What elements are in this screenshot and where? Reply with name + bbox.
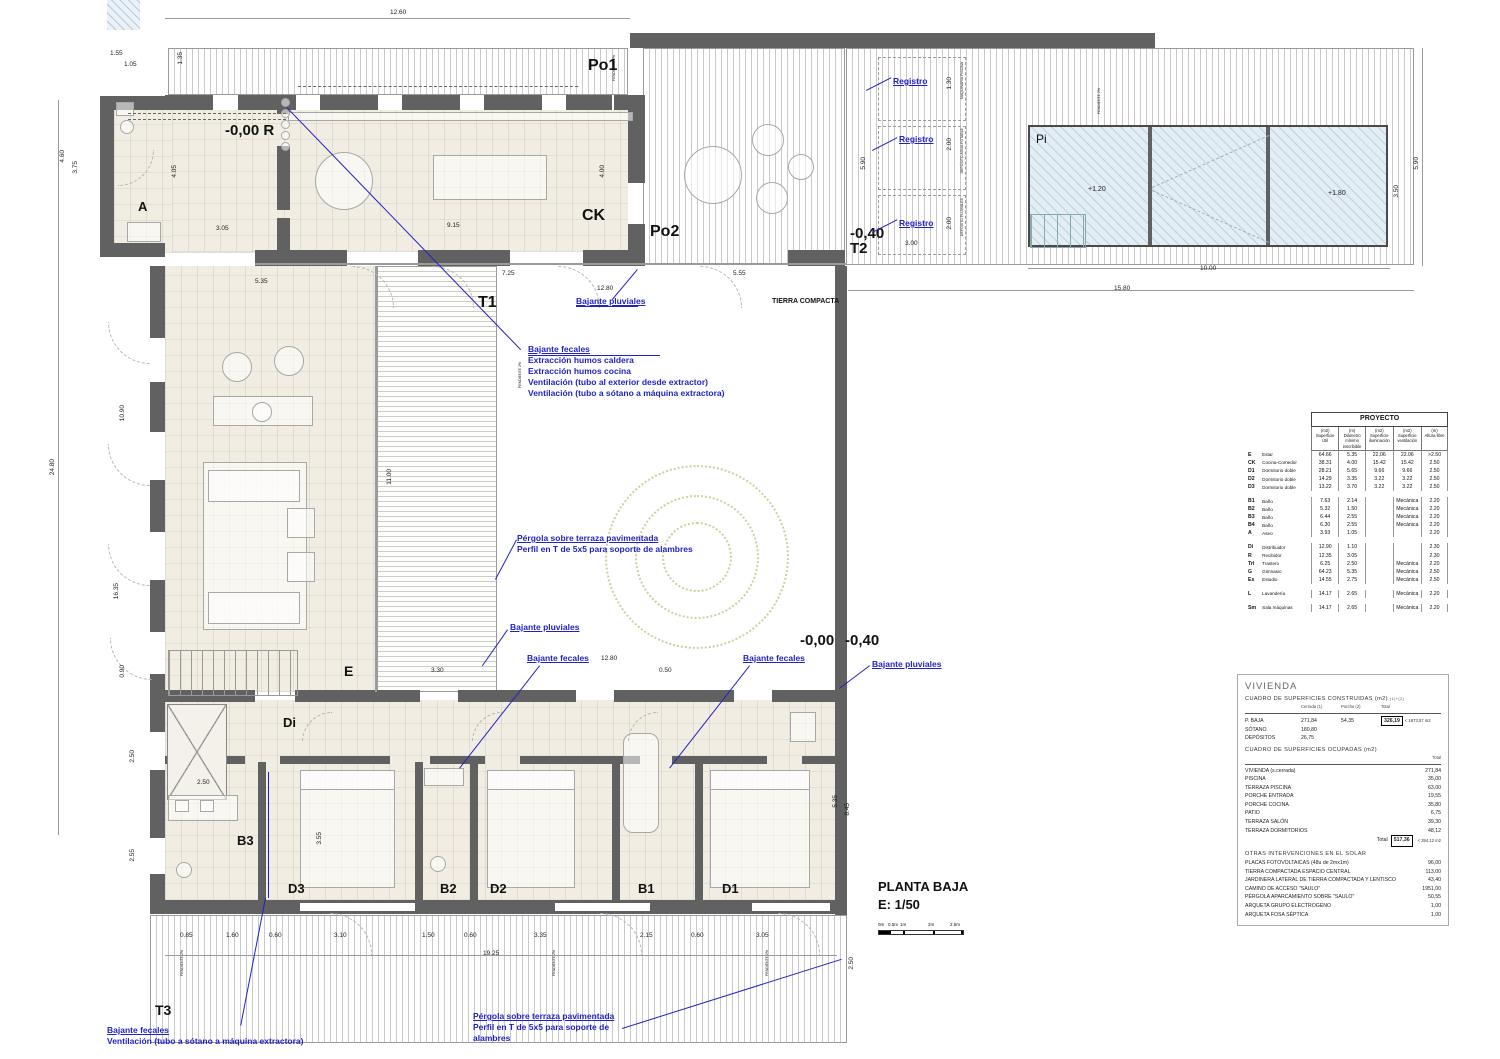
pbaja-total: 326,19: [1381, 716, 1403, 726]
furniture: [710, 770, 810, 790]
constructed-note: (1)+(2): [1390, 697, 1404, 701]
wall: [628, 224, 645, 266]
annotation-note: Bajante fecalesExtracción humos calderaE…: [528, 344, 724, 399]
furniture-round: [176, 862, 192, 878]
terrace-hatch: [168, 48, 628, 95]
room-label: -0,00: [800, 633, 834, 648]
dimension-label: +1.80: [1328, 190, 1346, 197]
other-intervention-row: ARQUETA FOSA SÉPTICA1,00: [1245, 911, 1441, 920]
proyecto-col-header: (m2)Superficieiluminación: [1366, 426, 1394, 450]
utility-line: [128, 119, 286, 120]
dimension-line: [58, 100, 59, 835]
dimension-label: 0.85: [180, 933, 193, 940]
annotation-line: Bajante pluviales: [872, 659, 941, 670]
vivienda-summary-panel: VIVIENDA CUADRO DE SUPERFICIES CONSTRUID…: [1237, 674, 1449, 926]
scale-bar-label: 0m: [878, 922, 884, 927]
dimension-label: 2.00: [947, 138, 954, 151]
dimension-label: 3.05: [756, 933, 769, 940]
door-swing-arc: [108, 322, 150, 364]
room-label: E: [344, 664, 353, 678]
dimension-label: 10.00: [1200, 266, 1216, 273]
annotation-line: Pérgola sobre terraza pavimentada: [517, 533, 693, 544]
floor-plan-canvas: PLANTA BAJA E: 1/50 0m0.5m1m2m2.5m PROYE…: [0, 0, 1500, 1059]
other-intervention-row: PLACAS FOTOVOLTAICAS (48u de 2mx1m)96,00: [1245, 859, 1441, 868]
wall: [430, 756, 485, 764]
dimension-label: 10.90: [120, 405, 127, 421]
wall: [150, 874, 165, 902]
wall: [150, 382, 165, 432]
proyecto-row: EEstar64.665.3522.0622.06>2.50: [1246, 450, 1448, 459]
room-label: Po2: [650, 224, 679, 240]
wall: [280, 756, 390, 764]
wall: [295, 690, 420, 702]
pbaja-label: P. BAJA: [1245, 717, 1301, 725]
dimension-label: 4.60: [60, 150, 67, 163]
annotation-line: Ventilación (tubo a sótano a máquina ext…: [107, 1036, 303, 1047]
leader-line: [495, 539, 517, 579]
dimension-label: 12.60: [390, 10, 406, 17]
furniture: [208, 592, 300, 624]
constructed-heading: CUADRO DE SUPERFICIES CONSTRUIDAS (m2) (…: [1245, 696, 1441, 702]
furniture-round: [430, 856, 446, 872]
furniture: [790, 712, 816, 742]
dimension-label: 5.35: [255, 279, 268, 286]
bajante-stack: [281, 98, 290, 107]
annotation-line: Bajante fecales: [743, 653, 805, 664]
proyecto-row: D1Dormitorio doble28.215.659.669.662.50: [1246, 467, 1448, 475]
room-label: -0,40: [845, 633, 879, 648]
utility-line: [298, 86, 578, 87]
other-intervention-row: JARDINERA LATERAL DE TIERRA COMPACTADA Y…: [1245, 876, 1441, 885]
furniture: [287, 552, 315, 582]
dimension-label: 11.00: [387, 469, 394, 485]
dimension-label: 0.60: [691, 933, 704, 940]
window-opening: [300, 903, 415, 911]
annotation-line: Bajante fecales: [528, 344, 724, 355]
wall: [415, 762, 423, 902]
occupied-total-row: Total 517,36 < 394,12 m2: [1245, 835, 1441, 847]
wall: [612, 762, 620, 902]
leader-line: [268, 772, 269, 898]
proyecto-row: DiDistribuidor12.901.102.30: [1246, 543, 1448, 551]
wall: [320, 95, 378, 110]
staircase: [168, 650, 298, 696]
occupied-row: PISCINA35,00: [1245, 775, 1441, 784]
wall: [484, 95, 542, 110]
dimension-label: 1.05: [124, 62, 137, 69]
wall: [520, 756, 640, 764]
annotation-line: Perfil en T de 5x5 para soporte de alamb…: [517, 544, 693, 555]
annotation-line: Registro: [899, 134, 933, 145]
col-cerrada: Cerrada (1): [1301, 704, 1341, 711]
proyecto-row: B2Baño5.321.50Mecánica2.20: [1246, 505, 1448, 513]
furniture: [127, 222, 161, 242]
other-rows: PLACAS FOTOVOLTAICAS (48u de 2mx1m)96,00…: [1245, 859, 1441, 919]
dimension-label: DEPÓSITO AGUA POTABLE: [961, 128, 965, 173]
annotation-note: Pérgola sobre terraza pavimentadaPerfil …: [517, 533, 693, 555]
dimension-line: [165, 18, 630, 19]
dimension-label: PENDIENTE 2%: [1098, 88, 1102, 114]
dimension-label: 5.35: [833, 795, 840, 808]
dimension-label: 0.90: [120, 665, 127, 678]
wall: [150, 900, 847, 914]
furniture: [424, 768, 464, 786]
furniture-round: [756, 182, 788, 214]
proyecto-row: CKCocina-Comedor38.314.0015.4215.422.50: [1246, 459, 1448, 467]
room-label: Di: [283, 716, 296, 729]
constructed-heading-text: CUADRO DE SUPERFICIES CONSTRUIDAS (m2): [1245, 696, 1388, 702]
furniture: [487, 770, 575, 790]
annotation-line: Registro: [899, 218, 933, 229]
dimension-label: 0.50: [659, 668, 672, 675]
dimension-label: 24.80: [50, 459, 57, 475]
other-intervention-row: PÉRGOLA APARCAMIENTO SOBRE "SAULO"50,55: [1245, 893, 1441, 902]
utility-line: [128, 113, 286, 114]
dimension-label: PENDIENTE 2%: [553, 950, 557, 976]
furniture-round: [788, 154, 814, 180]
annotation-line: Ventilación (tubo a sótano a máquina ext…: [528, 388, 724, 399]
dimension-line: [848, 290, 1414, 291]
dimension-label: 4.05: [172, 165, 179, 178]
dimension-label: 12.80: [597, 286, 613, 293]
terrace-t1-hatch: [377, 266, 497, 692]
wall: [802, 756, 835, 764]
wall: [100, 96, 175, 110]
dimension-label: DEPÓSITO PLUVIALES: [961, 198, 965, 236]
bajante-stack: [281, 120, 290, 129]
wall: [150, 770, 165, 838]
row-sotano: SÓTANO 180,80: [1245, 726, 1441, 734]
wall: [277, 146, 290, 210]
plan-title: PLANTA BAJA: [878, 878, 968, 896]
proyecto-row: TrlTrastero6.252.50Mecánica2.20: [1246, 560, 1448, 568]
proyecto-title: PROYECTO: [1312, 413, 1448, 427]
dimension-label: 12.80: [601, 656, 617, 663]
wall: [100, 243, 165, 257]
plan-scale: E: 1/50: [878, 896, 968, 914]
furniture-round: [222, 352, 252, 382]
annotation-line: Bajante fecales: [527, 653, 589, 664]
dimension-label: 16.35: [114, 583, 121, 599]
pbaja-porche: 54,35: [1341, 717, 1381, 725]
proyecto-row: AAseo3.931.052.20: [1246, 529, 1448, 537]
room-label: -0,00 R: [225, 123, 274, 138]
col-porche: Porche (2): [1341, 704, 1381, 711]
depositos-label: DEPÓSITOS: [1245, 734, 1301, 742]
wall: [614, 690, 734, 702]
dimension-line: [1422, 48, 1423, 266]
wall: [470, 762, 478, 902]
wall: [100, 96, 114, 256]
furniture-round: [120, 120, 134, 134]
room-label: CK: [582, 208, 605, 224]
furniture: [287, 508, 315, 538]
annotation-line: Bajante pluviales: [510, 622, 579, 633]
room-label: D3: [288, 882, 305, 895]
sotano-value: 180,80: [1301, 726, 1341, 734]
proyecto-col-header: (m)Altura libre: [1422, 426, 1448, 450]
proyecto-row: EsEstudio14.552.75Mecánica2.50: [1246, 576, 1448, 584]
wall: [566, 95, 612, 110]
row-depositos: DEPÓSITOS 26,75: [1245, 734, 1441, 742]
dimension-label: MAQUINARIA PISCINA: [961, 62, 965, 99]
proyecto-row: GGimnasio64.235.35Mecánica2.50: [1246, 568, 1448, 576]
dimension-label: 1.60: [226, 933, 239, 940]
occupied-total-value: 517,36: [1391, 835, 1413, 847]
annotation-line: Perfil en T de 5x5 para soporte de: [473, 1022, 614, 1033]
room-label: B2: [440, 882, 457, 895]
furniture: [208, 470, 300, 502]
annotation-note: Bajante fecalesVentilación (tubo a sótan…: [107, 1025, 303, 1047]
wall: [150, 480, 165, 532]
dimension-label: 2.50: [197, 780, 210, 787]
scale-bar-label: 0.5m: [888, 922, 898, 927]
annotation-line: Bajante fecales: [107, 1025, 303, 1036]
annotation-note: Bajante fecales: [743, 653, 805, 664]
wall: [165, 95, 213, 110]
scale-bar-label: 1m: [900, 922, 906, 927]
room-label: D1: [722, 882, 739, 895]
dimension-label: 1.50: [422, 933, 435, 940]
proyecto-row: LLavandería14.172.65Mecánica2.20: [1246, 590, 1448, 598]
wall: [1266, 127, 1270, 245]
scale-bar-labels: 0m0.5m1m2m2.5m: [878, 922, 978, 928]
dimension-label: 3.10: [334, 933, 347, 940]
door-swing-arc: [108, 444, 150, 486]
dimension-label: 0.60: [269, 933, 282, 940]
furniture-round: [684, 146, 742, 204]
dimension-label: 15.80: [1114, 286, 1130, 293]
wall: [150, 266, 165, 338]
dimension-label: 3.75: [73, 161, 80, 174]
wall: [630, 33, 1155, 48]
annotation-line: alambres: [473, 1033, 614, 1044]
dimension-label: PENDIENTE 2%: [181, 950, 185, 976]
wall: [695, 762, 703, 902]
dimension-label: 2.00: [947, 217, 954, 230]
wall: [258, 762, 266, 902]
pbaja-cerrada: 271,84: [1301, 717, 1341, 725]
proyecto-surfaces-table: PROYECTO (m2)SuperficieÚtil(m)Diámetromí…: [1246, 412, 1448, 612]
furniture: [433, 155, 547, 200]
occupied-limit: < 394,12 m2: [1418, 837, 1441, 845]
other-heading: OTRAS INTERVENCIONES EN EL SOLAR: [1245, 851, 1441, 857]
wall: [150, 580, 165, 632]
occupied-heading: CUADRO DE SUPERFICIES OCUPADAS (m2): [1245, 747, 1441, 753]
other-intervention-row: ARQUETA GRUPO ELECTROGENO1,00: [1245, 902, 1441, 911]
room-label: T3: [155, 1003, 171, 1017]
bajante-stack: [281, 142, 290, 151]
dimension-label: 4.00: [600, 165, 607, 178]
proyecto-row: RRecibidor12.353.052.30: [1246, 552, 1448, 560]
dimension-label: 1.55: [110, 51, 123, 58]
occupied-row: TERRAZA DORMITORIOS48,12: [1245, 827, 1441, 836]
leader-line: [576, 306, 638, 307]
plan-title-block: PLANTA BAJA E: 1/50: [878, 878, 968, 913]
dimension-label: 8.45: [845, 803, 852, 816]
dimension-label: 2.50: [130, 750, 137, 763]
row-pbaja: P. BAJA 271,84 54,35 326,19< 1873,57 m2: [1245, 716, 1441, 726]
annotation-line: Pérgola sobre terraza pavimentada: [473, 1011, 614, 1022]
pool-steps: [1030, 214, 1086, 248]
furniture: [200, 800, 214, 812]
dimension-label: 9.15: [447, 223, 460, 230]
annotation-line: Ventilación (tubo al exterior desde extr…: [528, 377, 724, 388]
dimension-label: 7.25: [502, 271, 515, 278]
scale-bar: [878, 930, 964, 935]
dimension-label: PENDIENTE 2%: [519, 362, 523, 388]
dimension-label: 3.55: [317, 832, 324, 845]
occupied-row: PATIO6,75: [1245, 809, 1441, 818]
annotation-line: Extracción humos cocina: [528, 366, 724, 377]
room-label: B3: [237, 834, 254, 847]
occupied-total-label: Total: [1377, 836, 1388, 846]
occupied-row: PORCHE COCINA35,80: [1245, 801, 1441, 810]
proyecto-row: B3Baño6.442.55Mecánica2.20: [1246, 513, 1448, 521]
door-swing-arc: [108, 544, 150, 586]
proyecto-row: SmSala máquinas14.172.65Mecánica2.20: [1246, 604, 1448, 612]
dimension-label: PENDIENTE 2%: [766, 950, 770, 976]
dimension-line: [375, 266, 377, 692]
room-label: B1: [638, 882, 655, 895]
dimension-label: 1.30: [947, 77, 954, 90]
dimension-label: 0.60: [464, 933, 477, 940]
furniture-round: [315, 152, 373, 210]
annotation-note: Bajante pluviales: [510, 622, 579, 633]
proyecto-row: B1Baño7.632.14Mecánica2.20: [1246, 497, 1448, 505]
occupied-row: TERRAZA PISCINA63,00: [1245, 784, 1441, 793]
room-label: D2: [490, 882, 507, 895]
wall: [835, 266, 847, 690]
proyecto-col-header: (m2)SuperficieÚtil: [1312, 426, 1339, 450]
annotation-note: Bajante fecales: [527, 653, 589, 664]
dimension-label: 2.15: [640, 933, 653, 940]
other-intervention-row: TIERRA COMPACTADA ESPACIO CENTRAL113,00: [1245, 868, 1441, 877]
dimension-label: 3.05: [216, 226, 229, 233]
annotation-note: Bajante pluviales: [872, 659, 941, 670]
dimension-label: 3.00: [905, 241, 918, 248]
wall: [672, 756, 767, 764]
annotation-note: Registro: [893, 76, 927, 87]
constructed-col-headers: Cerrada (1) Porche (2) Total: [1245, 704, 1441, 711]
room-label: T2: [850, 241, 868, 256]
dimension-label: 2.50: [849, 957, 856, 970]
annotation-note: Registro: [899, 218, 933, 229]
wall: [402, 95, 460, 110]
proyecto-row: B4Baño6.302.55Mecánica2.20: [1246, 521, 1448, 529]
scale-bar-label: 2m: [928, 922, 934, 927]
dimension-label: +1.20: [1088, 186, 1106, 193]
vivienda-title: VIVIENDA: [1245, 681, 1441, 692]
sotano-label: SÓTANO: [1245, 726, 1301, 734]
occupied-col-header: Total: [1245, 755, 1441, 762]
dimension-label: 5.55: [733, 271, 746, 278]
wall: [150, 674, 165, 732]
dimension-line: [255, 263, 847, 265]
proyecto-row: D2Dormitorio doble14.293.353.223.222.50: [1246, 475, 1448, 483]
window-opening: [555, 903, 650, 911]
pbaja-limit: < 1873,57 m2: [1405, 718, 1431, 723]
annotation-line: Registro: [893, 76, 927, 87]
annotation-note: Pérgola sobre terraza pavimentadaPerfil …: [473, 1011, 614, 1044]
proyecto-col-header: (m2)Superficieventilación: [1393, 426, 1421, 450]
proyecto-col-header: (m)Diámetromínimoinscribible: [1339, 426, 1366, 450]
furniture-round: [252, 402, 272, 422]
wall: [628, 95, 645, 183]
leader-line: [528, 355, 660, 356]
occupied-row: TERRAZA SALÓN39,30: [1245, 818, 1441, 827]
window-opening: [752, 903, 830, 911]
depositos-value: 26,75: [1301, 734, 1341, 742]
col-total: Total: [1381, 704, 1443, 711]
bajante-stack: [281, 131, 290, 140]
proyecto-row: D3Dormitorio doble13.223.703.223.222.50: [1246, 483, 1448, 491]
dimension-label: 5.90: [861, 157, 868, 170]
dimension-label: 3.30: [431, 668, 444, 675]
room-label: A: [138, 200, 147, 213]
bathtub: [623, 733, 659, 833]
furniture: [175, 800, 189, 812]
dimension-label: 1.35: [178, 52, 185, 65]
occupied-total-col: Total: [1432, 755, 1441, 762]
occupied-row: VIVIENDA (s.cerrada)271,84: [1245, 767, 1441, 776]
other-intervention-row: CAMINO DE ACCESO "SAULO"1951,00: [1245, 885, 1441, 894]
furniture: [288, 112, 633, 121]
room-label: Po1: [588, 58, 617, 74]
dimension-label: 19.25: [483, 951, 499, 958]
door-swing-arc: [110, 638, 152, 680]
wall: [277, 218, 290, 252]
dimension-label: 2.55: [130, 849, 137, 862]
room-label: Pi: [1036, 133, 1047, 145]
occupied-row: PORCHE ENTRADA19,55: [1245, 792, 1441, 801]
occupied-rows: VIVIENDA (s.cerrada)271,84PISCINA35,00TE…: [1245, 767, 1441, 836]
furniture-round: [274, 346, 304, 376]
annotation-note: Registro: [899, 134, 933, 145]
dimension-label: 3.50: [1394, 185, 1401, 198]
furniture-round: [752, 124, 784, 156]
dimension-label: 5.90: [1414, 157, 1421, 170]
furniture: [300, 770, 395, 790]
room-label: TIERRA COMPACTA: [772, 298, 839, 305]
water-hatch: [107, 0, 140, 30]
dimension-label: 3.35: [534, 933, 547, 940]
scale-bar-label: 2.5m: [950, 922, 960, 927]
annotation-line: Extracción humos caldera: [528, 355, 724, 366]
dimension-line: [165, 955, 837, 956]
